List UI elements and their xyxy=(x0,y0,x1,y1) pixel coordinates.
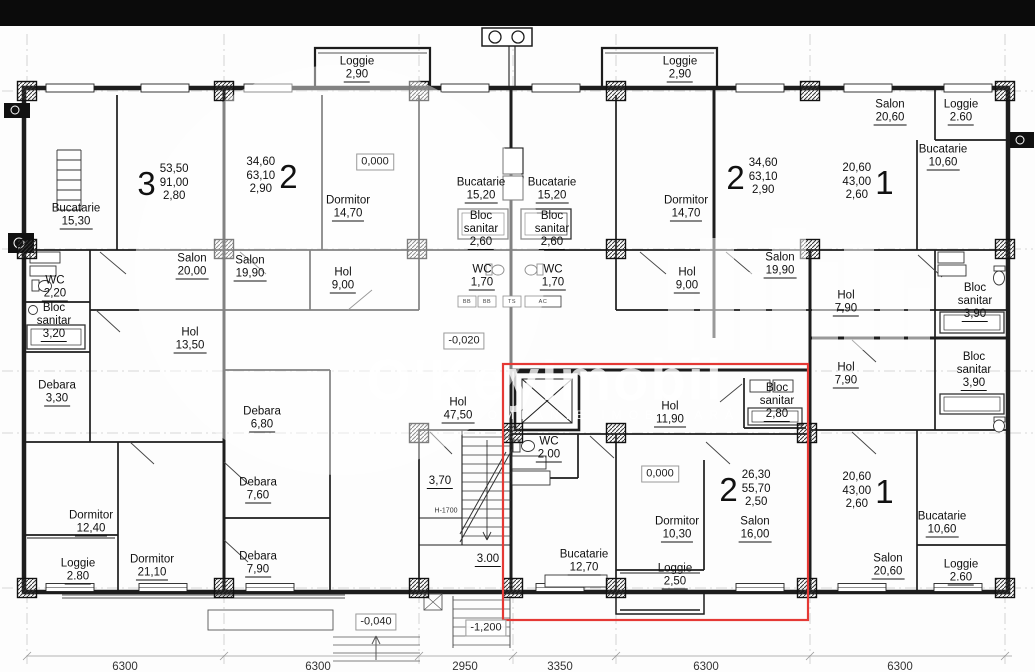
utility-box-label: BB xyxy=(463,299,471,305)
elevation-label: -0,040 xyxy=(355,614,396,631)
room-label: Dormitor14,70 xyxy=(326,195,370,222)
room-label: Salon20,60 xyxy=(872,553,905,580)
dimension-label: 6300 xyxy=(305,661,331,672)
apartment-marker: 120,6043,002,60 xyxy=(842,162,893,203)
room-label: Hol7,90 xyxy=(833,362,859,389)
room-label: Salon16,00 xyxy=(739,516,772,543)
room-label: Bloc sanitar2,80 xyxy=(760,382,795,422)
room-label: Loggie2,90 xyxy=(663,56,698,83)
dimension-label: 6300 xyxy=(887,661,913,672)
room-label: Debara7,60 xyxy=(239,477,277,504)
room-label: Bloc sanitar2,60 xyxy=(464,210,499,250)
room-label: WC2,20 xyxy=(42,275,68,302)
apartment-marker: 234,6063,102,90 xyxy=(726,157,777,198)
room-label: Salon19,90 xyxy=(234,255,267,282)
room-label: Debara7,90 xyxy=(239,551,277,578)
room-label: Hol11,90 xyxy=(654,401,686,428)
room-label: Bucatarie10,60 xyxy=(919,144,968,171)
height-annotation: H-1700 xyxy=(435,508,458,515)
room-label: Bloc sanitar3,20 xyxy=(37,302,72,342)
room-label: 3,70 xyxy=(427,475,453,489)
elevation-label: 0,000 xyxy=(641,466,679,483)
room-label: Bloc sanitar3,90 xyxy=(958,282,993,322)
elevation-label: -0,020 xyxy=(443,333,484,350)
apartment-marker: 226,3055,702,50 xyxy=(719,469,770,510)
room-label: Bucatarie15,30 xyxy=(52,203,101,230)
room-label: Hol7,90 xyxy=(833,290,859,317)
apartment-marker: 120,6043,002,60 xyxy=(842,471,893,512)
room-label: Dormitor21,10 xyxy=(130,554,174,581)
room-label: Hol13,50 xyxy=(174,327,207,354)
room-label: Salon20,60 xyxy=(874,99,907,126)
dimension-label: 3350 xyxy=(547,661,573,672)
dimension-label: 6300 xyxy=(112,661,138,672)
room-label: WC1,70 xyxy=(469,264,495,291)
room-label: Salon19,90 xyxy=(764,252,797,279)
room-label: Bloc sanitar2,60 xyxy=(535,210,570,250)
room-label: WC1,70 xyxy=(540,264,566,291)
elevation-label: -1,200 xyxy=(465,620,506,637)
floorplan-page: O'KeyImobil COMPANIE IMOBILIARĂ Loggie2,… xyxy=(0,0,1035,672)
room-label: Loggie2.80 xyxy=(61,558,96,585)
room-label: Debara6,80 xyxy=(243,406,281,433)
room-label: Hol9,00 xyxy=(330,267,356,294)
room-label: Bucatarie15,20 xyxy=(528,177,577,204)
room-label: Loggie2,50 xyxy=(658,563,693,590)
elevation-label: 0,000 xyxy=(356,154,394,171)
room-label: Loggie2,90 xyxy=(340,56,375,83)
apartment-marker: 353,5091,002,80 xyxy=(137,163,188,204)
room-label: Loggie2.60 xyxy=(944,559,979,586)
room-label: Bucatarie15,20 xyxy=(457,177,506,204)
room-label: Hol9,00 xyxy=(674,267,700,294)
room-label: Bucatarie12,70 xyxy=(560,549,609,576)
room-label: Bloc sanitar3,90 xyxy=(957,351,992,391)
room-label: Bucatarie10,60 xyxy=(918,511,967,538)
room-label: Dormitor10,30 xyxy=(655,516,699,543)
dimension-label: 6300 xyxy=(693,661,719,672)
utility-box-label: TS xyxy=(508,299,516,305)
room-label: Hol47,50 xyxy=(442,397,475,424)
utility-box-label: AC xyxy=(539,299,548,305)
room-label: Dormitor12,40 xyxy=(69,510,113,537)
room-label: Loggie2.60 xyxy=(944,99,979,126)
room-label: 3.00 xyxy=(475,553,501,567)
room-label: Debara3,30 xyxy=(38,380,76,407)
room-label: Dormitor14,70 xyxy=(664,195,708,222)
apartment-marker: 234,6063,102,90 xyxy=(246,156,297,197)
room-label: WC2.00 xyxy=(536,436,562,463)
dimension-label: 2950 xyxy=(452,661,478,672)
room-label: Salon20,00 xyxy=(176,253,209,280)
labels-layer: Loggie2,90Loggie2,90Salon20,60Loggie2.60… xyxy=(0,0,1035,672)
utility-box-label: BB xyxy=(483,299,491,305)
